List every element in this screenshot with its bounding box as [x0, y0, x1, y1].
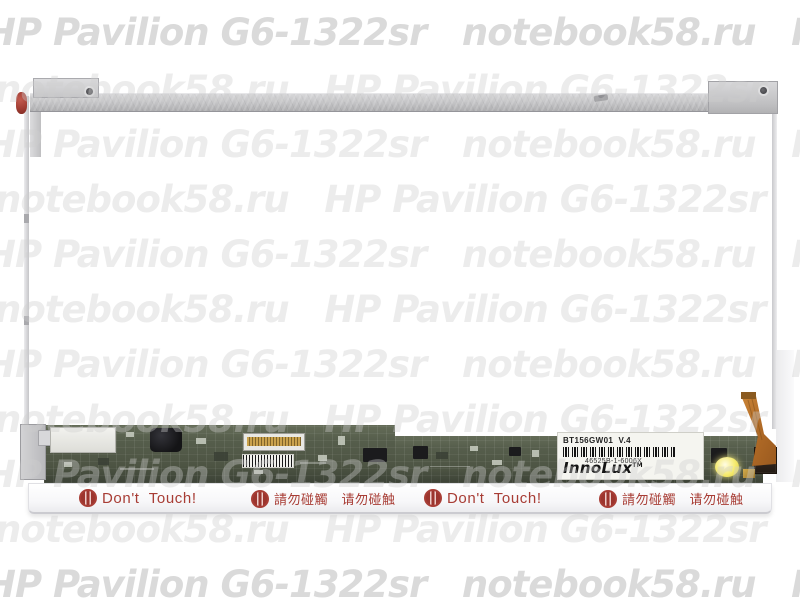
- pcb-component: [254, 470, 263, 474]
- panel-right-edge: [772, 99, 777, 429]
- pcb-component: [64, 462, 72, 467]
- warning-group: 請勿碰觸 请勿碰触: [251, 489, 396, 508]
- red-rubber-stopper: [16, 92, 27, 114]
- watermark-row: HP Pavilion G6-1322sr notebook58.ru HP P…: [0, 125, 800, 165]
- spec-barcode: [563, 447, 675, 457]
- lvds-connector-pins: [247, 437, 301, 446]
- trademark-symbol: TM: [632, 462, 643, 469]
- panel-edge-notch: [24, 214, 29, 223]
- panel-cell-connector: [50, 427, 116, 453]
- dont-touch-text: Don't Touch!: [447, 490, 542, 507]
- spec-model-text: BT156GW01 V.4: [563, 436, 698, 445]
- pcb-component: [532, 450, 539, 457]
- dont-touch-chinese-text: 請勿碰觸 请勿碰触: [622, 489, 744, 508]
- dont-touch-chinese-text: 請勿碰觸 请勿碰触: [274, 489, 396, 508]
- lvds-connector: [243, 433, 305, 451]
- panel-left-edge: [24, 96, 29, 426]
- flex-cable: [728, 388, 790, 480]
- watermark-row: HP Pavilion G6-1322sr notebook58.ru HP P…: [0, 235, 800, 275]
- silkscreen-mark: [120, 468, 154, 470]
- pcb-component: [470, 446, 478, 451]
- dont-touch-hand-icon: [251, 490, 269, 508]
- panel-spec-label: BT156GW01 V.4 46525B-1-6006X InnoLuxTM: [557, 432, 704, 480]
- lcd-panel-product-photo: BT156GW01 V.4 46525B-1-6006X InnoLuxTM D…: [0, 0, 800, 600]
- innolux-logo: InnoLuxTM: [563, 459, 643, 477]
- pcb-component: [98, 458, 109, 465]
- panel-edge-notch: [24, 316, 29, 325]
- pcb-component: [436, 452, 448, 459]
- screw-hole: [86, 88, 93, 95]
- warning-group: Don't Touch!: [79, 489, 197, 507]
- dont-touch-text: Don't Touch!: [102, 490, 197, 507]
- silkscreen-mark: [300, 462, 326, 464]
- dont-touch-hand-icon: [599, 490, 617, 508]
- pcb-component: [196, 438, 206, 444]
- pcb-ic: [509, 447, 521, 456]
- watermark-row: HP Pavilion G6-1322sr notebook58.ru HP P…: [0, 345, 800, 385]
- watermark-row: HP Pavilion G6-1322sr notebook58.ru HP P…: [0, 565, 800, 600]
- pcb-component: [318, 455, 327, 461]
- pcb-barcode-sticker: [242, 454, 294, 468]
- bracket-right-plate: [708, 81, 778, 114]
- pcb-ic: [363, 448, 387, 462]
- watermark-row: notebook58.ru HP Pavilion G6-1322sr note…: [0, 290, 800, 330]
- timing-controller-ic: [150, 428, 182, 452]
- warning-strip: Don't Touch! 請勿碰觸 请勿碰触 Don't Touch! 請勿碰觸…: [28, 483, 772, 514]
- silkscreen-mark: [430, 466, 470, 467]
- metal-texture: [30, 94, 776, 111]
- screw-hole: [760, 87, 767, 94]
- pcb-component: [126, 432, 134, 437]
- pcb-component: [492, 460, 502, 465]
- watermark-row: notebook58.ru HP Pavilion G6-1322sr note…: [0, 510, 800, 550]
- warning-group: Don't Touch!: [424, 489, 542, 507]
- watermark-row: HP Pavilion G6-1322sr notebook58.ru HP P…: [0, 13, 800, 53]
- warning-group: 請勿碰觸 请勿碰触: [599, 489, 744, 508]
- panel-top-bracket-bar: [30, 93, 776, 112]
- dont-touch-hand-icon: [424, 489, 442, 507]
- pcb-component: [338, 436, 345, 445]
- pcb-ic: [413, 446, 428, 459]
- dont-touch-hand-icon: [79, 489, 97, 507]
- pcb-component: [214, 452, 228, 461]
- watermark-row: notebook58.ru HP Pavilion G6-1322sr note…: [0, 180, 800, 220]
